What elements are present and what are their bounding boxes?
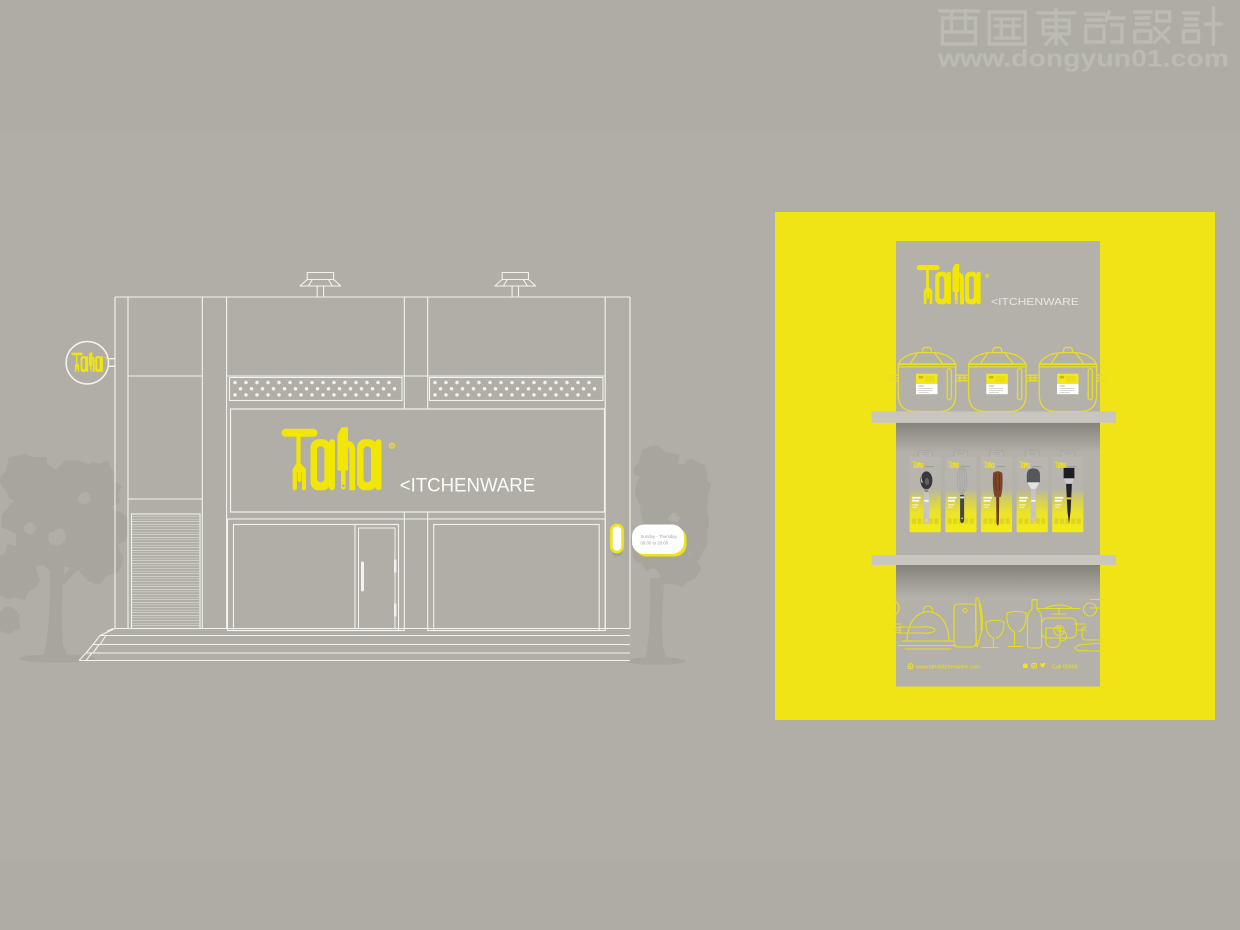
svg-text:<ITCHENWARE: <ITCHENWARE bbox=[991, 297, 1079, 308]
svg-text:<ITCHENWARE: <ITCHENWARE bbox=[400, 475, 536, 497]
svg-text:www.tahakitchenware.com: www.tahakitchenware.com bbox=[915, 665, 980, 671]
svg-text:Sunday - Thursday: Sunday - Thursday bbox=[641, 534, 678, 539]
svg-text:www.dongyun01.com: www.dongyun01.com bbox=[937, 46, 1229, 73]
svg-text:08:00 to 20:00: 08:00 to 20:00 bbox=[641, 541, 669, 546]
svg-text:Call 00966: Call 00966 bbox=[1052, 665, 1078, 671]
